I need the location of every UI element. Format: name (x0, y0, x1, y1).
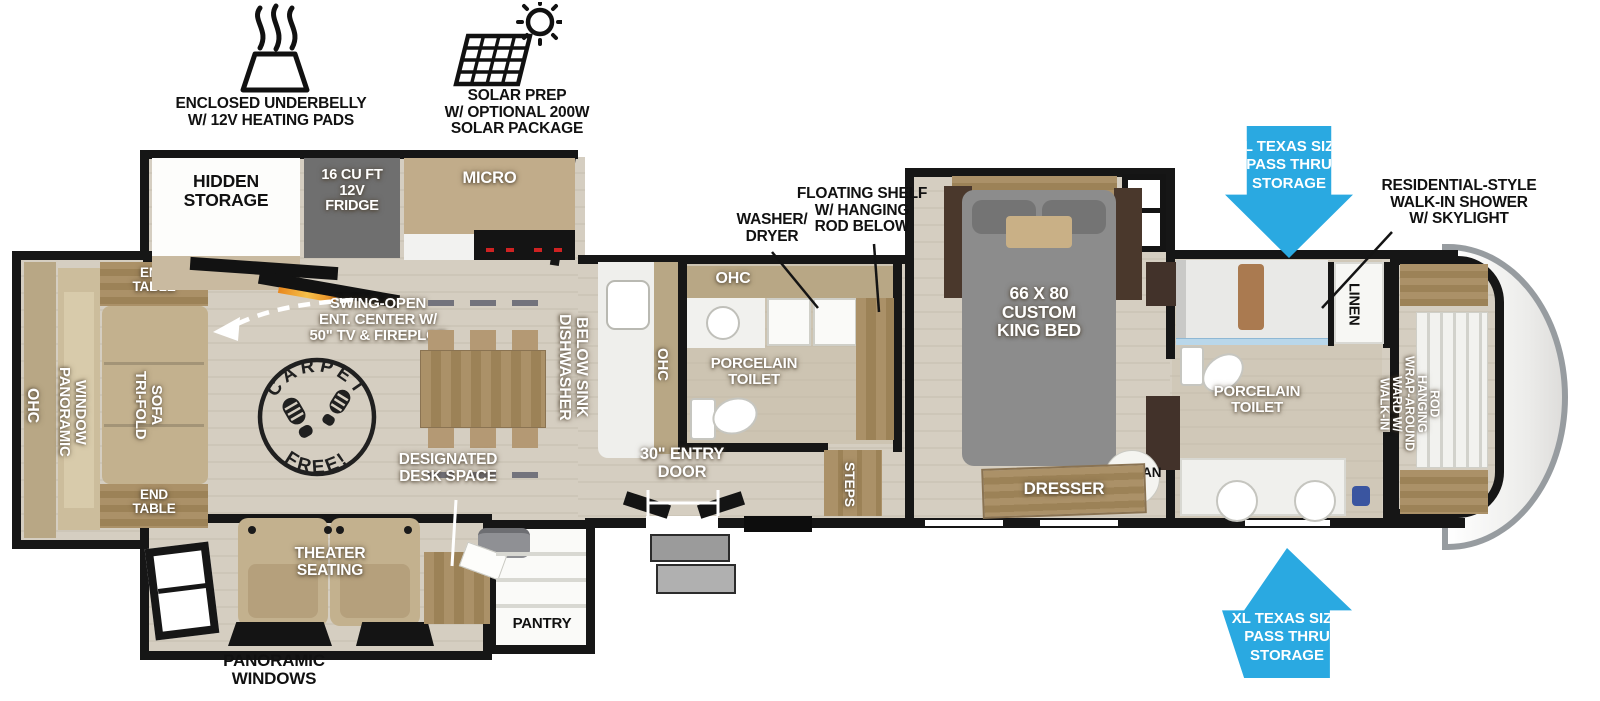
ward-shelf (1400, 264, 1488, 306)
entry-door-label: 30" ENTRY DOOR (612, 446, 752, 481)
mid-toilet-label: PORCELAIN TOILET (690, 356, 818, 388)
burner (534, 248, 542, 252)
slide-window (228, 622, 332, 646)
slide-window (356, 622, 434, 646)
cup-holder (324, 526, 332, 534)
window (925, 520, 1003, 526)
window (744, 516, 812, 532)
dining-chair (512, 300, 538, 350)
cup-holder (248, 526, 256, 534)
steps-label: STEPS (842, 452, 868, 516)
underbelly-label: ENCLOSED UNDERBELLY W/ 12V HEATING PADS (160, 96, 382, 129)
tri-fold-sofa-label: TRI-FOLD SOFA (132, 330, 176, 480)
pantry-shelf (496, 604, 586, 608)
exterior-step (656, 564, 736, 594)
cup-holder (336, 526, 344, 534)
walk-in-ward-label: WALK-IN WARD W/ WRAP-AROUND HANGING ROD (1378, 315, 1444, 493)
wall (1166, 168, 1175, 260)
bath-ohc-label: OHC (698, 270, 768, 287)
shower-glass (1176, 338, 1328, 345)
entry-door-gap (646, 516, 718, 530)
front-toilet-label: PORCELAIN TOILET (1198, 384, 1316, 416)
bath-sink (706, 306, 740, 340)
boot-print-icon (279, 394, 316, 440)
heating-pads-icon (225, 2, 325, 94)
wall (893, 262, 902, 452)
wall (140, 150, 149, 262)
svg-text:CARPET: CARPET (263, 355, 372, 400)
pantry-label: PANTRY (496, 616, 588, 632)
dishwasher-label: DISHWASHER BELOW SINK (556, 272, 600, 462)
rv-floorplan: ENCLOSED UNDERBELLY W/ 12V HEATING PADS … (0, 0, 1600, 701)
washer (767, 298, 811, 346)
burner (554, 248, 562, 252)
walk-in-shower-label: RESIDENTIAL-STYLE WALK-IN SHOWER W/ SKYL… (1368, 178, 1550, 228)
kitchen-sink (606, 280, 650, 330)
carpet-stamp-bottom-text: FREE! (281, 448, 353, 479)
panoramic-windows-label: PANORAMIC WINDOWS (200, 652, 348, 688)
carpet-free-stamp: CARPET FREE! (252, 352, 382, 482)
rear-ohc-label: OHC (24, 345, 56, 465)
pantry-shelf (496, 552, 586, 556)
shower-bench (1238, 264, 1264, 330)
svg-text:FREE!: FREE! (281, 448, 353, 479)
vanity-decor (1352, 486, 1370, 506)
theater-seating-label: THEATER SEATING (252, 546, 408, 579)
king-bed-label: 66 X 80 CUSTOM KING BED (975, 284, 1103, 340)
burner (486, 248, 494, 252)
vanity-sink (1294, 480, 1336, 522)
shower-wall (1176, 260, 1186, 344)
floating-shelf-label: FLOATING SHELF W/ HANGING ROD BELOW (788, 186, 936, 236)
boot-print-icon (319, 387, 353, 429)
panoramic-window-label: PANORAMIC WINDOW (56, 322, 104, 502)
stove (474, 230, 575, 260)
burner (506, 248, 514, 252)
pantry-shelf (496, 578, 586, 582)
linen-label: LINEN (1345, 268, 1373, 340)
solar-label: SOLAR PREP W/ OPTIONAL 200W SOLAR PACKAG… (438, 88, 596, 138)
desk-space-label: DESIGNATED DESK SPACE (372, 452, 524, 485)
wardrobe (1114, 188, 1142, 300)
bedroom-cabinet (1146, 262, 1180, 306)
hidden-storage-label: HIDDEN STORAGE (152, 172, 300, 209)
solar-panel-icon (450, 2, 562, 88)
wall (1166, 250, 1458, 259)
wall (678, 262, 687, 450)
micro-label: MICRO (404, 170, 575, 188)
dining-chair (470, 300, 496, 350)
window (1040, 520, 1118, 526)
kitchen-counter (404, 234, 474, 260)
dresser-label: DRESSER (982, 480, 1146, 498)
accent-pillow (1006, 216, 1072, 248)
vanity-sink (1216, 480, 1258, 522)
cup-holder (404, 526, 412, 534)
pass-thru-arrow-down: XL TEXAS SIZE PASS THRU STORAGE (1225, 126, 1353, 258)
toilet-tank (1180, 346, 1204, 386)
dining-table (420, 350, 546, 428)
carpet-stamp-top-text: CARPET (263, 355, 372, 400)
fridge-label: 16 CU FT 12V FRIDGE (304, 168, 400, 215)
floating-shelf (856, 298, 894, 440)
pass-thru-arrow-up: XL TEXAS SIZE PASS THRU STORAGE (1222, 548, 1352, 678)
dryer (813, 298, 857, 346)
end-table-bottom-label: END TABLE (100, 488, 208, 517)
exterior-step (650, 534, 730, 562)
dining-chair (428, 300, 454, 350)
kitchen-ohc-label: OHC (654, 332, 678, 396)
